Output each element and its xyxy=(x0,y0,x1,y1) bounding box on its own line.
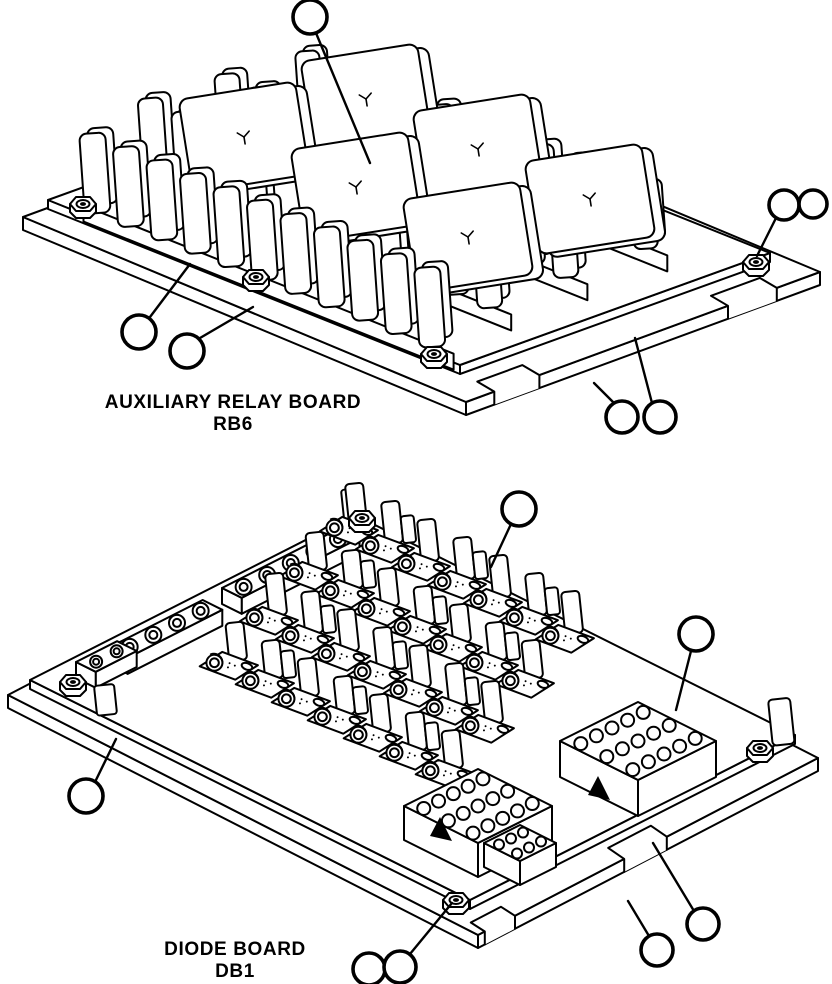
hex-nut xyxy=(349,511,375,532)
callout-circle xyxy=(170,334,204,368)
diode-board-label: DIODE BOARD DB1 xyxy=(85,939,385,983)
leader-line xyxy=(594,383,614,403)
hex-nut xyxy=(70,197,96,218)
rb6-drawing xyxy=(23,0,827,433)
hex-nut xyxy=(743,255,769,276)
hex-nut xyxy=(60,675,86,696)
callout-circle xyxy=(122,315,156,349)
callout-circle xyxy=(769,190,799,220)
db1-drawing xyxy=(8,481,818,984)
diagram-canvas xyxy=(0,0,832,984)
relay-board-subtitle: RB6 xyxy=(33,414,433,436)
relay-board-title: AUXILIARY RELAY BOARD xyxy=(33,392,433,414)
leader-line xyxy=(653,843,694,911)
relay-board-label: AUXILIARY RELAY BOARD RB6 xyxy=(33,392,433,436)
diode-board-title: DIODE BOARD xyxy=(85,939,385,961)
callout-circle xyxy=(799,190,827,218)
hex-nut xyxy=(421,347,447,368)
hex-nut xyxy=(747,741,773,762)
callout-circle xyxy=(644,401,676,433)
callout-circle xyxy=(641,934,673,966)
callout-circle xyxy=(293,0,327,34)
diode-board-subtitle: DB1 xyxy=(85,961,385,983)
callout-circle xyxy=(606,401,638,433)
leader-line xyxy=(628,901,649,936)
callout-circle xyxy=(679,617,713,651)
callout-circle xyxy=(384,951,416,983)
callout-circle xyxy=(502,492,536,526)
callout-circle xyxy=(687,908,719,940)
parts-diagram-page: AUXILIARY RELAY BOARD RB6 DIODE BOARD DB… xyxy=(0,0,832,984)
hex-nut xyxy=(243,270,269,291)
callout-circle xyxy=(69,779,103,813)
